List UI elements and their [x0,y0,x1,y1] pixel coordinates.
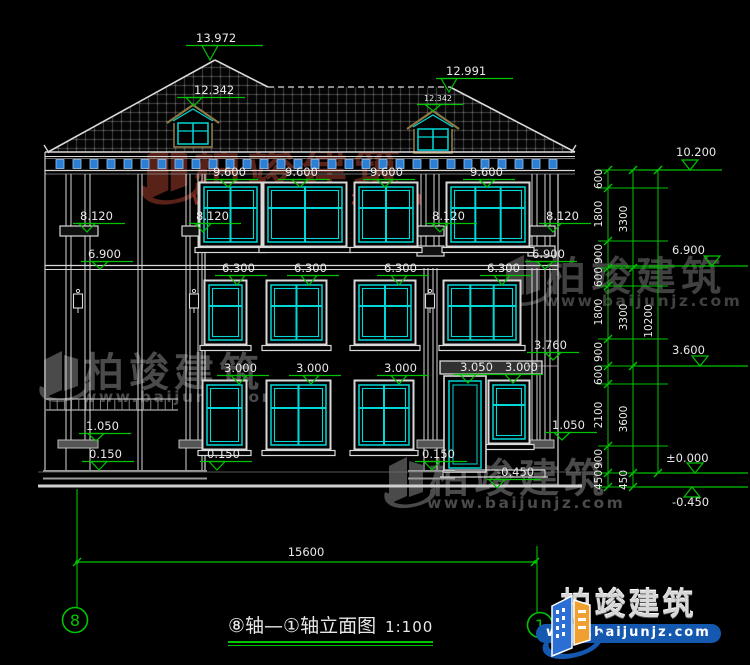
column-capital [528,226,555,236]
elevation-label: 1.050 [86,419,119,433]
chain-elevation-marker: 3.600 [638,343,748,366]
elevation-label: 12.342 [424,94,452,103]
dim-value: 3300 [618,304,630,331]
elevation-label: 8.120 [80,209,113,223]
eave-corbel [192,160,200,169]
dim-value: 600 [593,267,605,287]
eave-corbel [328,160,336,169]
window-frame [444,281,521,345]
elevation-label: 0.150 [89,447,122,461]
eave-corbel [141,160,149,169]
elevation-label: 9.600 [370,165,403,179]
elevation-label: -0.450 [497,465,534,479]
dimension-chain-right: 6001800900600180090060021009004503300330… [593,145,748,509]
elevation-triangle [692,356,708,366]
elevation-label: 8.120 [432,209,465,223]
windows-floor3 [195,183,534,253]
eave-corbel [277,160,285,169]
window-sill [350,451,418,456]
window-frame [203,381,247,450]
elevation-label: 6.300 [384,261,417,275]
dim-value: 900 [593,244,605,264]
window-sill [484,445,534,450]
elevation-label: 6.900 [672,243,705,257]
dim-value: 900 [593,342,605,362]
chain-elevation-marker: -0.450 [638,487,748,509]
logo-tower-orange [574,600,590,645]
elevation-label: 3.600 [672,343,705,357]
elevation-label: 6.300 [487,261,520,275]
dim-value: 450 [618,470,630,490]
dim-node [533,560,537,564]
eave-corbel [413,160,421,169]
eave-corbel [362,160,370,169]
lamp-icon [190,294,199,308]
column-capital [417,226,444,236]
elevation-label: 3.000 [296,361,329,375]
elevation-triangle [202,46,218,61]
watermark-url: www.baijunjz.com [82,388,280,406]
elevation-triangle [91,462,107,471]
lamp-icon [74,294,83,308]
elevation-label: 10.200 [676,145,716,159]
elevation-drawing: 柏竣建筑www.baijunjz.com柏竣建筑www.baijunjz.com… [0,0,750,665]
elevation-label: 6.900 [88,247,121,261]
eave-corbel [260,160,268,169]
elevation-label: 6.300 [222,261,255,275]
eave-corbel [107,160,115,169]
eave-corbel [345,160,353,169]
window-sill [350,346,420,351]
brand-logo: 柏竣建筑 www.baijunjz.com [536,588,721,643]
dimension-bottom: 15600 [73,545,539,566]
lamp-icon [428,289,431,292]
dim-value: 1800 [593,201,605,228]
eave-corbel [549,160,557,169]
elevation-triangle [554,433,570,441]
dim-value: 15600 [288,545,325,559]
elevation-label: 1.050 [552,418,585,432]
roof-surface [48,60,575,152]
dim-value: 1800 [593,299,605,326]
window-sill [262,346,331,351]
window-frame [489,381,530,444]
elevation-label: 12.991 [446,64,486,78]
dim-value: 10200 [643,304,655,337]
eave-corbel [430,160,438,169]
watermark-url: www.baijunjz.com [427,494,625,512]
elevation-label: 3.000 [224,361,257,375]
column-capital [60,226,98,236]
lamp-icon [76,289,79,292]
elevation-label: 9.600 [285,165,318,179]
eave-corbel [158,160,166,169]
drawing-scale: 1:100 [385,618,433,636]
window-sill [439,346,525,351]
eave-corbel [175,160,183,169]
window-frame [205,281,247,345]
axis-number: 8 [70,611,80,630]
chain-elevation-marker: ±0.000 [638,451,748,473]
elevation-label: 13.972 [196,31,236,45]
window-sill [262,451,335,456]
cad-canvas: 柏竣建筑www.baijunjz.com柏竣建筑www.baijunjz.com… [0,0,750,665]
dim-value: 600 [593,169,605,189]
elevation-triangle [209,462,225,471]
elevation-label: 3.760 [534,338,567,352]
chain-elevation-marker: 10.200 [638,145,722,170]
eave-corbel [73,160,81,169]
elevation-label: 9.600 [470,165,503,179]
drawing-title: ⑧轴—①轴立面图1:100 [228,614,433,643]
brand-logo-icon [536,588,608,662]
elevation-label: 6.300 [294,261,327,275]
eave-corbel [515,160,523,169]
eave-corbel [532,160,540,169]
windows-floor2 [200,281,525,351]
elevation-label: 0.150 [207,447,240,461]
lamp-icon [192,289,195,292]
dim-value: 3600 [618,406,630,433]
window-sill [259,248,351,253]
watermark-logo-icon [44,351,62,398]
elevation-label: 8.120 [196,209,229,223]
window-sill [195,248,266,253]
dim-value: 900 [593,449,605,469]
lamp-icon [426,294,435,308]
elevation-triangle [682,160,698,170]
eave-corbel [90,160,98,169]
watermark-logo-icon [389,457,407,504]
elevation-label: 8.120 [546,209,579,223]
axis-bubble: 8 [63,489,88,633]
elevation-label: 3.050 [460,360,493,374]
eave-corbel [447,160,455,169]
elevation-label: 9.600 [213,165,246,179]
eave-corbel [124,160,132,169]
watermark-logo-icon [526,259,540,295]
window-sill [350,248,422,253]
window-sill [442,248,534,253]
elevation-label: 12.342 [194,83,234,97]
elevation-label: 3.000 [384,361,417,375]
dim-value: 2100 [593,402,605,429]
dim-value: 600 [593,365,605,385]
elevation-label: 0.150 [422,447,455,461]
elevation-label: 6.900 [532,247,565,261]
dim-value: 450 [593,470,605,490]
eave-corbel [56,160,64,169]
elevation-label: 3.000 [505,360,538,374]
drawing-title-text: ⑧轴—①轴立面图 [228,615,376,637]
dim-value: 3300 [618,206,630,233]
window-sill [200,346,251,351]
